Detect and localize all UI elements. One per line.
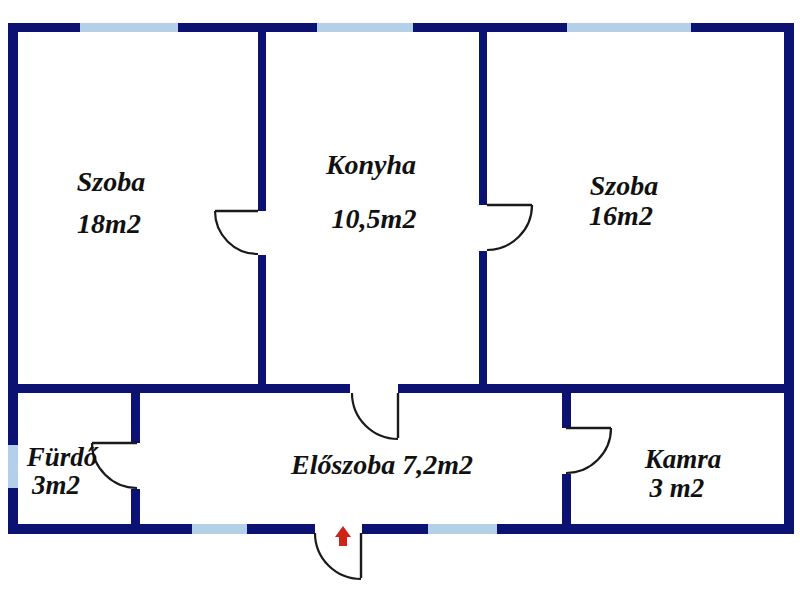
wall-outer-bottom-right [362,524,794,534]
window-top-szoba16 [567,23,691,32]
door-furdo [92,443,137,488]
wall-outer-bottom-left [8,524,315,534]
floorplan-svg: Szoba18m2Konyha10,5m2Szoba16m2Fürdő3m2El… [0,0,800,600]
door-konyha-eloszoba-swing-arc [352,393,398,439]
wall-divider-furdo-lower [131,489,140,524]
window-bottom-left [192,524,247,534]
door-furdo-swing-arc [92,443,137,488]
door-entrance [315,533,361,579]
entrance-arrow-layer [335,526,351,546]
wall-divider-szoba18-upper [258,32,266,211]
labels-layer: Szoba18m2Konyha10,5m2Szoba16m2Fürdő3m2El… [26,149,722,503]
door-kamra-swing-arc [566,428,611,473]
window-top-konyha [317,23,413,32]
window-bottom-right [428,524,497,534]
room-label-konyha-name: Konyha [325,149,416,180]
wall-divider-kamra-lower [562,474,571,524]
door-konyha-eloszoba [352,393,398,439]
door-szoba16 [487,205,532,250]
room-label-eloszoba: Előszoba 7,2m2 [290,449,473,480]
wall-outer-right [784,23,794,534]
floorplan-page: Szoba18m2Konyha10,5m2Szoba16m2Fürdő3m2El… [0,0,800,600]
wall-mid-horizontal-right [398,384,794,393]
window-top-szoba18 [80,23,178,32]
wall-divider-kamra-upper [562,393,571,428]
wall-mid-horizontal-left [8,384,350,393]
room-label-kamra-name: Kamra [644,444,722,474]
door-szoba18 [215,211,258,254]
door-szoba18-swing-arc [215,211,258,254]
room-label-szoba16-name: Szoba [590,170,658,201]
wall-divider-szoba18-lower [258,255,266,384]
wall-divider-szoba16-upper [479,32,487,205]
door-entrance-swing-arc [315,533,361,579]
door-kamra [566,428,611,473]
wall-divider-furdo-upper [131,393,140,443]
room-label-szoba18-name: Szoba [77,166,145,197]
entrance-arrow-icon [335,526,351,546]
room-label-szoba18-area: 18m2 [77,208,141,239]
room-label-furdo-area: 3m2 [31,470,80,500]
room-label-szoba16-area: 16m2 [589,200,653,231]
room-label-furdo-name: Fürdő [26,442,99,472]
window-left-furdo [8,445,18,488]
door-szoba16-swing-arc [487,205,532,250]
wall-divider-szoba16-lower [479,251,487,384]
room-label-kamra-area: 3 m2 [649,473,705,503]
room-label-konyha-area: 10,5m2 [332,203,417,234]
